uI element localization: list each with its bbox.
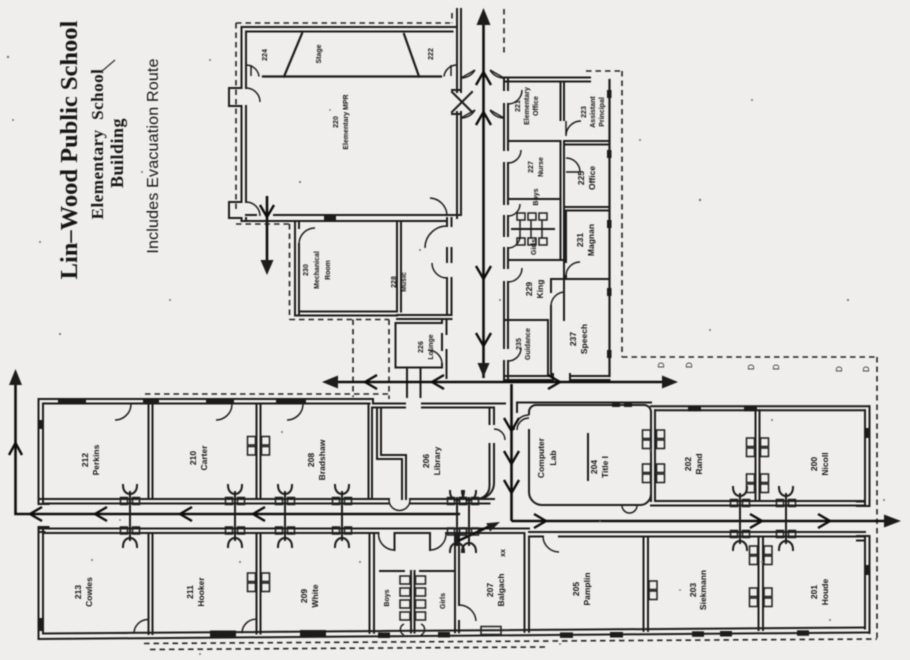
svg-text:Building: Building xyxy=(107,118,127,188)
svg-text:Girls: Girls xyxy=(440,593,447,609)
svg-text:224: 224 xyxy=(262,49,269,61)
svg-text:Girls: Girls xyxy=(531,239,538,255)
svg-text:Lin–Wood Public School: Lin–Wood Public School xyxy=(56,20,83,279)
svg-text:D: D xyxy=(685,362,694,368)
svg-text:Stage: Stage xyxy=(316,44,323,63)
svg-text:D: D xyxy=(862,366,871,372)
svg-text:Boys: Boys xyxy=(533,188,540,205)
svg-text:D: D xyxy=(657,362,666,368)
svg-text:D: D xyxy=(747,364,756,370)
svg-text:Boys: Boys xyxy=(384,589,391,606)
svg-text:Elementary School: Elementary School xyxy=(88,69,107,220)
svg-text:229King: 229King xyxy=(524,280,545,299)
svg-text:D: D xyxy=(835,366,844,372)
svg-text:D: D xyxy=(772,364,781,370)
svg-text:222: 222 xyxy=(428,48,435,60)
svg-text:Includes Evacuation Route: Includes Evacuation Route xyxy=(145,58,162,253)
svg-text:xx: xx xyxy=(500,549,507,557)
